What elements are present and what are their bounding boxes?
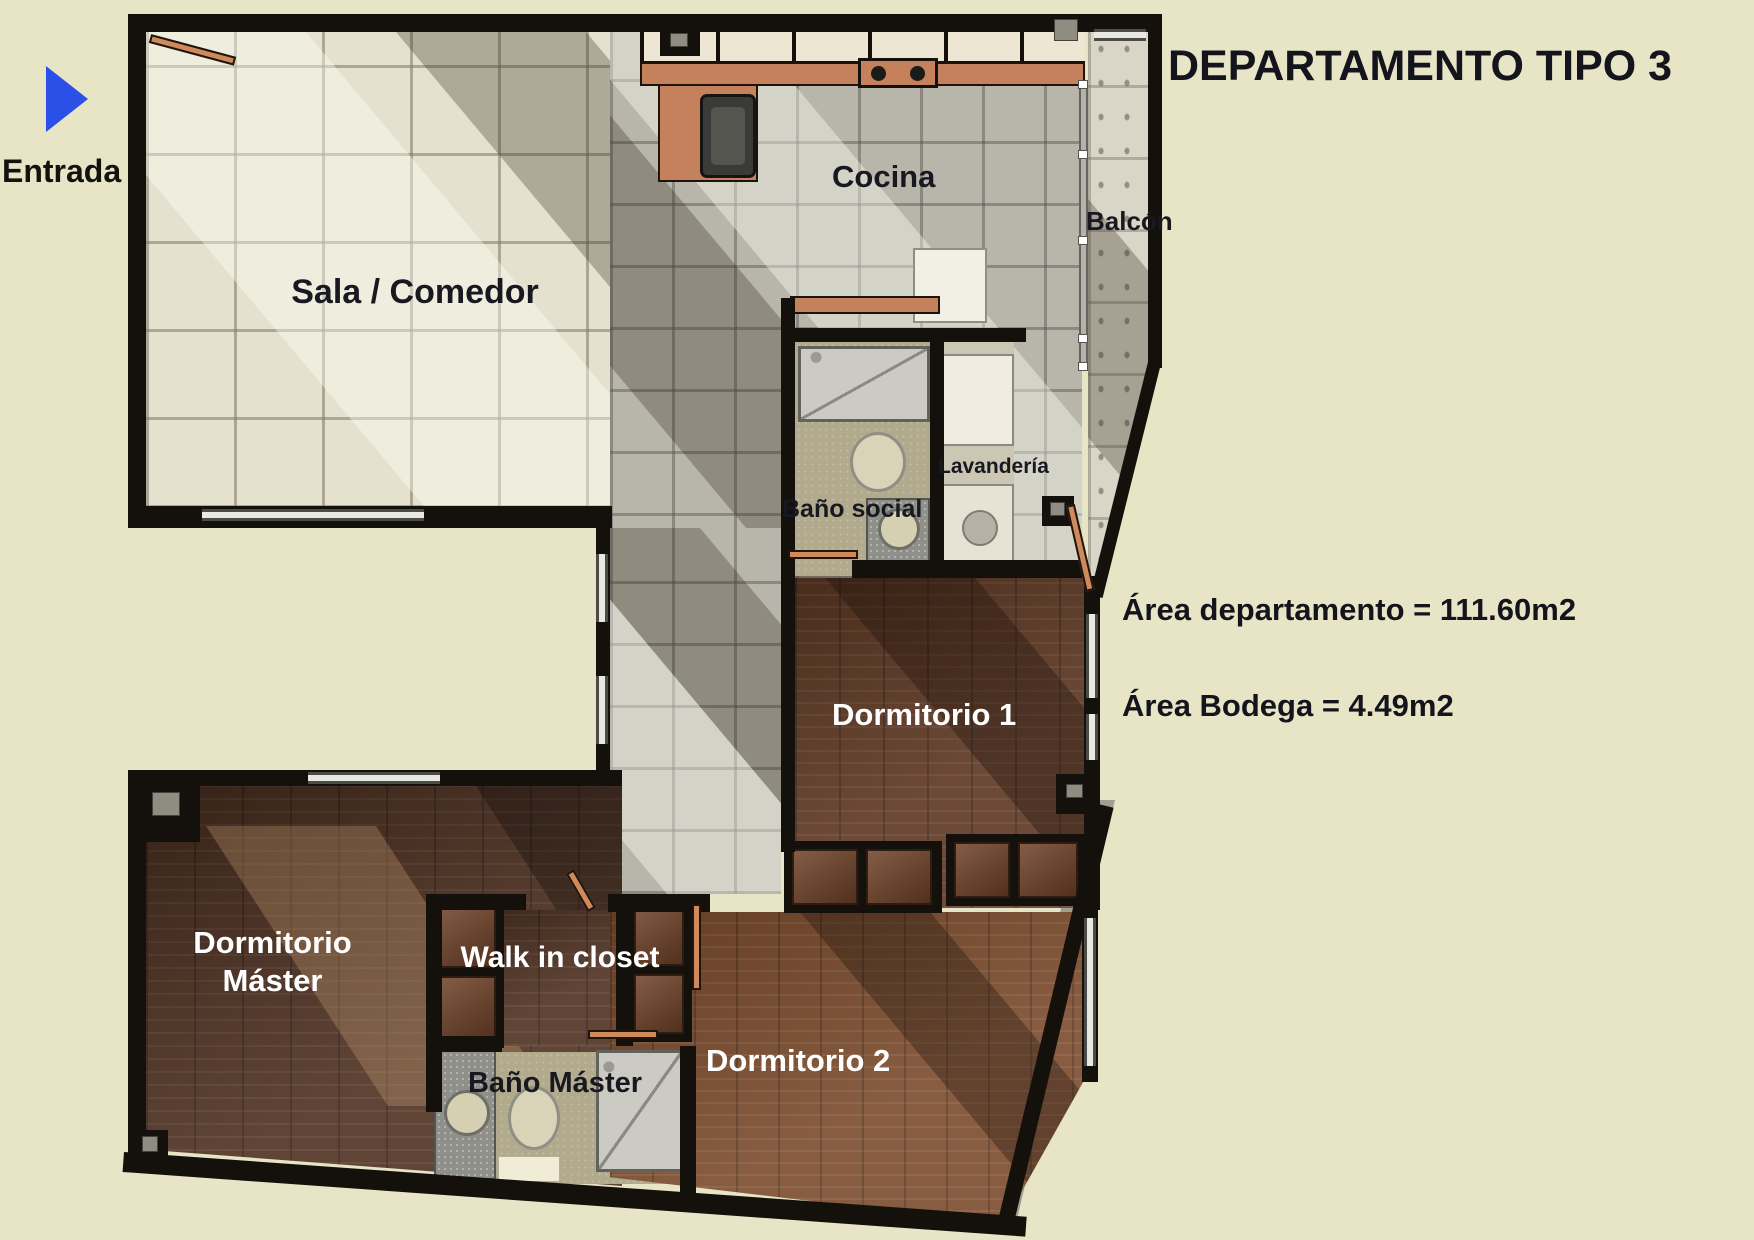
window-hall-west-2 bbox=[596, 676, 608, 744]
window-sala-south bbox=[202, 509, 424, 521]
bath-mat bbox=[498, 1156, 560, 1182]
toilet-master bbox=[508, 1086, 560, 1150]
wall-sala-left bbox=[128, 14, 146, 528]
door-bano-social bbox=[788, 550, 858, 559]
stove bbox=[858, 58, 938, 88]
glass-wall-balcony bbox=[1079, 82, 1088, 370]
window-dorm1-east-1 bbox=[1086, 614, 1098, 698]
wall-bath-top bbox=[781, 328, 944, 342]
closet-dorm2-west bbox=[626, 896, 692, 1042]
wall-balcony-right bbox=[1148, 14, 1162, 368]
wall-master-left bbox=[128, 770, 146, 1162]
washer-2 bbox=[940, 484, 1014, 568]
washer-1 bbox=[940, 354, 1014, 446]
wall-bath-lav-divider bbox=[930, 328, 944, 576]
toilet-social bbox=[850, 432, 906, 492]
bath-counter-strip bbox=[790, 296, 940, 314]
door-bano-master bbox=[588, 1030, 658, 1039]
window-master-north bbox=[308, 772, 440, 784]
floor-plan-canvas: Sala / Comedor Cocina Balcón Baño social… bbox=[0, 0, 1754, 1240]
wall-banomaster-east bbox=[680, 1046, 696, 1196]
wall-walkin-top bbox=[426, 894, 526, 910]
shower-social bbox=[798, 346, 930, 422]
hall-floor bbox=[610, 528, 781, 894]
wall-lav-top bbox=[930, 328, 1026, 342]
kitchen-sink bbox=[700, 94, 756, 178]
wall-dorm1-top-b bbox=[852, 560, 1085, 578]
door-dorm2 bbox=[692, 904, 701, 990]
wall-walkin-east bbox=[616, 894, 633, 1046]
column-balcony-top bbox=[1054, 19, 1078, 41]
page-title: DEPARTAMENTO TIPO 3 bbox=[1168, 42, 1672, 91]
shower-master bbox=[596, 1050, 684, 1172]
sala-comedor-floor bbox=[146, 32, 610, 508]
sink-social bbox=[866, 498, 930, 568]
entrance-arrow-icon bbox=[46, 66, 88, 132]
closet-dorm1-left bbox=[784, 841, 942, 913]
area-departamento-text: Área departamento = 111.60m2 bbox=[1122, 592, 1576, 628]
window-dorm2-east bbox=[1084, 918, 1096, 1066]
wall-walkin-banomaster-divider bbox=[426, 1036, 502, 1052]
vanity-master bbox=[434, 1050, 496, 1180]
entrance-label: Entrada bbox=[2, 152, 121, 191]
closet-dorm1-right bbox=[946, 834, 1086, 906]
wall-dorm1-top-a bbox=[781, 560, 795, 578]
wall-walkin-west bbox=[426, 894, 442, 1112]
wall-top bbox=[128, 14, 1162, 32]
window-hall-west-1 bbox=[596, 554, 608, 622]
area-bodega-text: Área Bodega = 4.49m2 bbox=[1122, 688, 1454, 724]
window-dorm1-east-2 bbox=[1086, 714, 1098, 760]
window-balcony-north bbox=[1094, 29, 1146, 41]
